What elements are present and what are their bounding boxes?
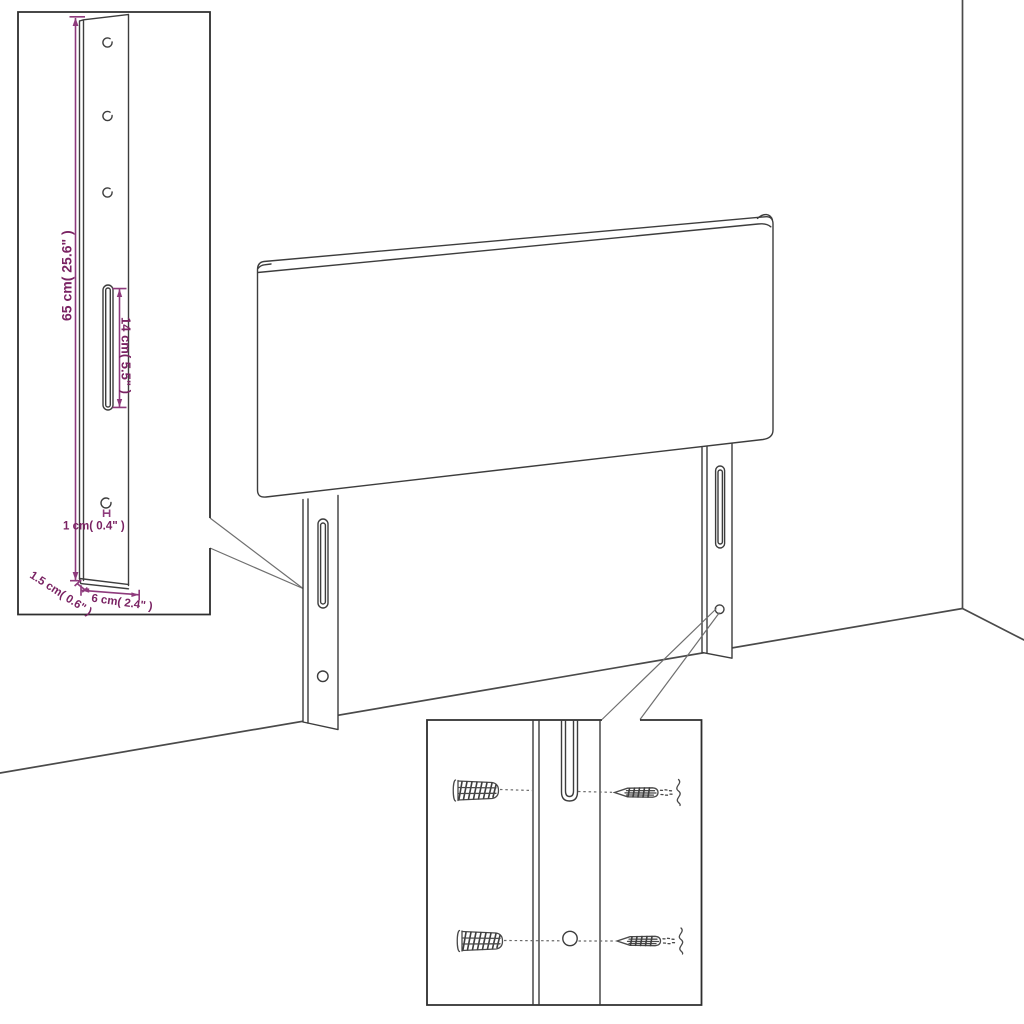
magnified-leg bbox=[533, 721, 600, 1005]
mounting-inset-border bbox=[427, 720, 702, 1005]
leader-plug-top bbox=[500, 790, 532, 791]
diagram-canvas: 65 cm( 25.6" ) 14 cm( 5.5" ) 1 cm( 0.4" … bbox=[0, 0, 1024, 1024]
bracket-detail-inset: 65 cm( 25.6" ) 14 cm( 5.5" ) 1 cm( 0.4" … bbox=[18, 12, 210, 618]
headboard-left-leg bbox=[303, 495, 338, 729]
headboard-drawing bbox=[258, 215, 774, 730]
magnified-slot bbox=[562, 721, 578, 802]
dimension-width-label: 6 cm( 2.4" ) bbox=[91, 593, 154, 613]
wall-plug-top bbox=[453, 780, 498, 801]
callout-lines-bracket-detail bbox=[210, 518, 303, 589]
magnified-hole bbox=[563, 931, 577, 945]
screw-bottom bbox=[617, 928, 683, 954]
diagram-stage: 65 cm( 25.6" ) 14 cm( 5.5" ) 1 cm( 0.4" … bbox=[0, 0, 1024, 1024]
dimension-slot-label: 14 cm( 5.5" ) bbox=[119, 317, 134, 394]
dimension-height-label: 65 cm( 25.6" ) bbox=[59, 230, 75, 321]
screw-top bbox=[615, 780, 681, 806]
floor-line-left bbox=[0, 609, 963, 774]
headboard-right-leg bbox=[702, 443, 732, 658]
wall-plug-bottom bbox=[457, 931, 502, 952]
floor-line-right bbox=[963, 609, 1024, 641]
dimension-hole-label: 1 cm( 0.4" ) bbox=[63, 521, 125, 533]
bracket-drawing bbox=[80, 15, 129, 589]
mounting-detail-inset bbox=[427, 720, 702, 1005]
leader-screw-top bbox=[578, 792, 612, 793]
headboard-panel bbox=[258, 215, 774, 498]
